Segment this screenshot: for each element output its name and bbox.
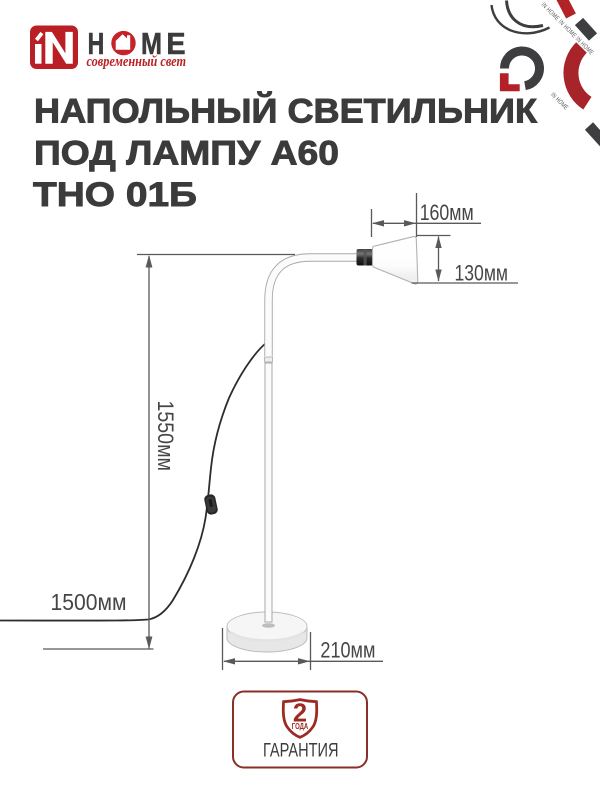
svg-text:1550мм: 1550мм: [153, 401, 178, 472]
svg-text:160мм: 160мм: [420, 200, 474, 225]
svg-text:ПОД ЛАМПУ А60: ПОД ЛАМПУ А60: [34, 134, 339, 172]
svg-text:IN HOME: IN HOME: [549, 91, 569, 111]
svg-text:210мм: 210мм: [320, 638, 375, 663]
svg-text:современный свет: современный свет: [87, 54, 187, 70]
svg-text:130мм: 130мм: [455, 260, 509, 285]
svg-text:1500мм: 1500мм: [51, 589, 127, 615]
svg-text:НАПОЛЬНЫЙ СВЕТИЛЬНИК: НАПОЛЬНЫЙ СВЕТИЛЬНИК: [34, 92, 537, 131]
svg-text:ГАРАНТИЯ: ГАРАНТИЯ: [263, 740, 339, 762]
svg-text:ГОДА: ГОДА: [292, 721, 309, 731]
svg-text:ТНО 01Б: ТНО 01Б: [33, 176, 197, 214]
